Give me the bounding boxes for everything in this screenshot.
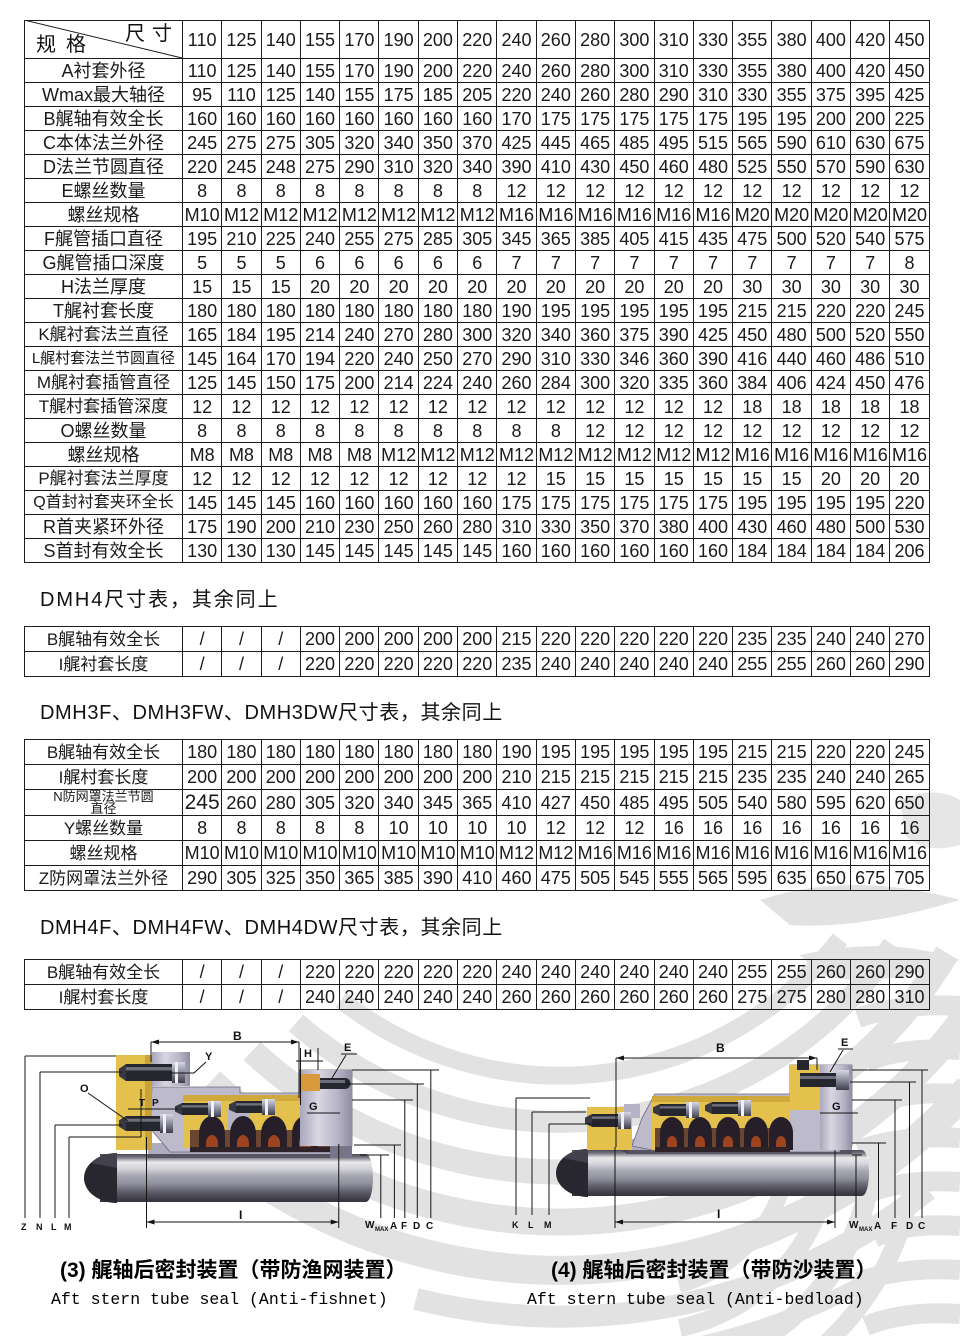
svg-text:O: O bbox=[80, 1083, 89, 1095]
svg-text:MAX: MAX bbox=[859, 1227, 872, 1233]
svg-text:M: M bbox=[544, 1220, 552, 1230]
svg-text:D: D bbox=[906, 1221, 913, 1232]
svg-text:N: N bbox=[36, 1222, 43, 1232]
svg-text:E: E bbox=[344, 1042, 351, 1054]
svg-text:尺: 尺 bbox=[125, 20, 145, 46]
svg-text:寸: 寸 bbox=[152, 20, 172, 46]
svg-text:G: G bbox=[832, 1101, 841, 1113]
svg-text:B: B bbox=[716, 1041, 725, 1055]
svg-text:F: F bbox=[891, 1221, 897, 1232]
svg-text:Y: Y bbox=[205, 1051, 213, 1063]
svg-text:M: M bbox=[64, 1222, 72, 1232]
svg-text:D: D bbox=[413, 1221, 420, 1232]
svg-text:H: H bbox=[304, 1048, 312, 1060]
svg-text:规: 规 bbox=[36, 28, 56, 57]
svg-text:C: C bbox=[426, 1221, 433, 1232]
svg-text:L: L bbox=[528, 1220, 534, 1230]
svg-text:C: C bbox=[918, 1221, 925, 1232]
svg-text:T: T bbox=[139, 1098, 145, 1109]
svg-text:I: I bbox=[717, 1207, 720, 1221]
svg-text:K: K bbox=[512, 1220, 519, 1230]
svg-text:A: A bbox=[874, 1221, 881, 1232]
svg-text:格: 格 bbox=[66, 28, 86, 57]
svg-text:W: W bbox=[365, 1220, 375, 1231]
svg-text:P: P bbox=[152, 1098, 159, 1109]
svg-text:MAX: MAX bbox=[375, 1227, 388, 1233]
svg-text:Z: Z bbox=[21, 1222, 27, 1232]
svg-text:B: B bbox=[233, 1030, 242, 1043]
svg-text:W: W bbox=[849, 1220, 859, 1231]
svg-text:A: A bbox=[390, 1221, 397, 1232]
svg-text:I: I bbox=[239, 1208, 242, 1222]
svg-text:F: F bbox=[401, 1221, 407, 1232]
svg-text:E: E bbox=[841, 1037, 848, 1049]
svg-text:G: G bbox=[309, 1101, 318, 1113]
svg-text:L: L bbox=[51, 1222, 57, 1232]
